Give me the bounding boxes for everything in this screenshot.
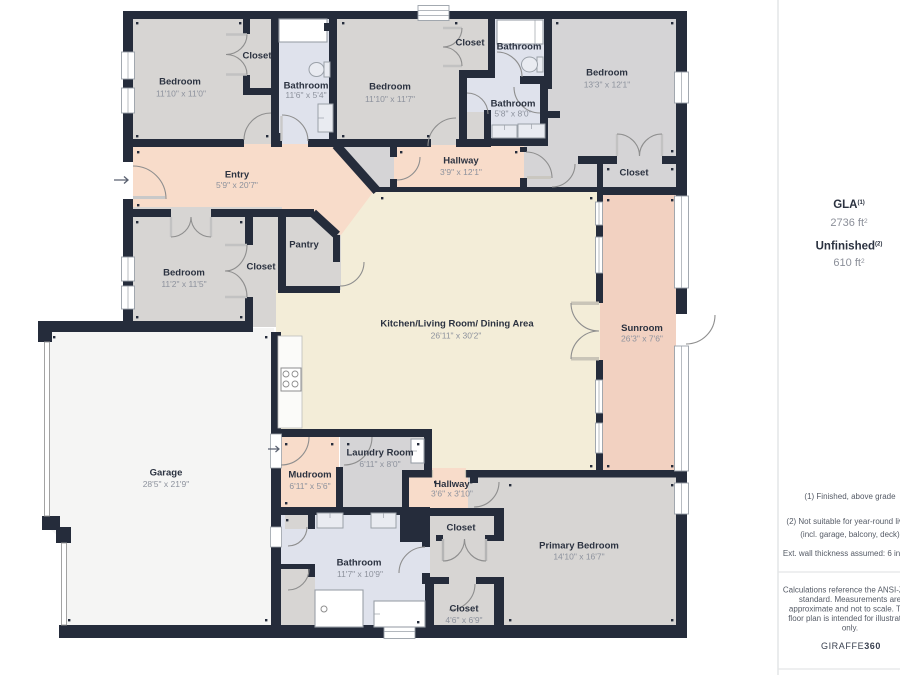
svg-text:26'11" x 30'2": 26'11" x 30'2" xyxy=(431,331,482,341)
svg-text:11'2" x 11'5": 11'2" x 11'5" xyxy=(161,279,206,289)
svg-text:standard. Measurements are: standard. Measurements are xyxy=(799,595,900,604)
svg-text:Laundry Room: Laundry Room xyxy=(346,448,413,459)
svg-text:Unfinished(2): Unfinished(2) xyxy=(816,241,883,253)
svg-text:Bedroom: Bedroom xyxy=(163,268,205,279)
svg-text:Closet: Closet xyxy=(246,262,276,273)
svg-text:Hallway: Hallway xyxy=(443,156,479,167)
svg-text:28'5" x 21'9": 28'5" x 21'9" xyxy=(143,479,190,489)
svg-text:11'6" x 5'4": 11'6" x 5'4" xyxy=(285,90,326,100)
svg-text:Kitchen/Living Room/ Dining Ar: Kitchen/Living Room/ Dining Area xyxy=(380,319,534,330)
svg-text:13'3" x 12'1": 13'3" x 12'1" xyxy=(584,80,631,90)
svg-text:GIRAFFE360: GIRAFFE360 xyxy=(821,641,881,651)
svg-text:Sunroom: Sunroom xyxy=(621,323,663,334)
svg-text:11'7" x 10'9": 11'7" x 10'9" xyxy=(337,569,383,579)
svg-text:floor plan is intended for ill: floor plan is intended for illustration xyxy=(788,614,900,623)
svg-text:Bedroom: Bedroom xyxy=(586,68,628,79)
svg-text:(1) Finished, above grade: (1) Finished, above grade xyxy=(804,492,896,501)
svg-text:Primary Bedroom: Primary Bedroom xyxy=(539,541,619,552)
svg-text:14'10" x 16'7": 14'10" x 16'7" xyxy=(553,552,604,562)
svg-text:Bathroom: Bathroom xyxy=(497,42,542,53)
svg-text:3'9" x 12'1": 3'9" x 12'1" xyxy=(440,167,482,177)
svg-text:only.: only. xyxy=(842,624,858,633)
svg-text:6'11" x 8'0": 6'11" x 8'0" xyxy=(359,459,400,469)
svg-text:Closet: Closet xyxy=(446,523,476,534)
svg-text:2736 ft2: 2736 ft2 xyxy=(830,217,868,229)
svg-text:Closet: Closet xyxy=(242,51,272,62)
svg-text:Ext. wall thickness assumed: 6: Ext. wall thickness assumed: 6 inches xyxy=(783,549,900,558)
svg-text:(2) Not suitable for year-roun: (2) Not suitable for year-round living xyxy=(786,517,900,526)
svg-text:Entry: Entry xyxy=(225,170,250,181)
svg-text:11'10" x 11'7": 11'10" x 11'7" xyxy=(365,94,415,104)
svg-text:610 ft2: 610 ft2 xyxy=(833,257,865,269)
svg-text:Closet: Closet xyxy=(455,38,485,49)
svg-text:26'3" x 7'6": 26'3" x 7'6" xyxy=(621,334,663,344)
svg-text:Bedroom: Bedroom xyxy=(369,82,411,93)
svg-text:3'6" x 3'10": 3'6" x 3'10" xyxy=(431,489,473,499)
svg-text:5'9" x 20'7": 5'9" x 20'7" xyxy=(216,180,258,190)
svg-text:Bathroom: Bathroom xyxy=(337,558,382,569)
svg-text:Closet: Closet xyxy=(619,168,649,179)
svg-text:approximate and not to scale.: approximate and not to scale. This xyxy=(789,605,900,614)
svg-text:6'11" x 5'6": 6'11" x 5'6" xyxy=(289,481,330,491)
svg-text:(incl. garage, balcony, deck): (incl. garage, balcony, deck) xyxy=(800,530,900,539)
svg-text:5'8" x 8'0": 5'8" x 8'0" xyxy=(494,109,531,119)
svg-text:Closet: Closet xyxy=(449,604,479,615)
svg-text:Garage: Garage xyxy=(150,468,183,479)
svg-text:11'10" x 11'0": 11'10" x 11'0" xyxy=(156,89,206,99)
svg-text:Pantry: Pantry xyxy=(289,240,319,251)
svg-text:4'6" x 6'9": 4'6" x 6'9" xyxy=(445,615,482,625)
svg-text:Bedroom: Bedroom xyxy=(159,77,201,88)
svg-text:Mudroom: Mudroom xyxy=(288,470,331,481)
svg-text:Calculations reference the ANS: Calculations reference the ANSI-Z765 xyxy=(783,586,900,595)
